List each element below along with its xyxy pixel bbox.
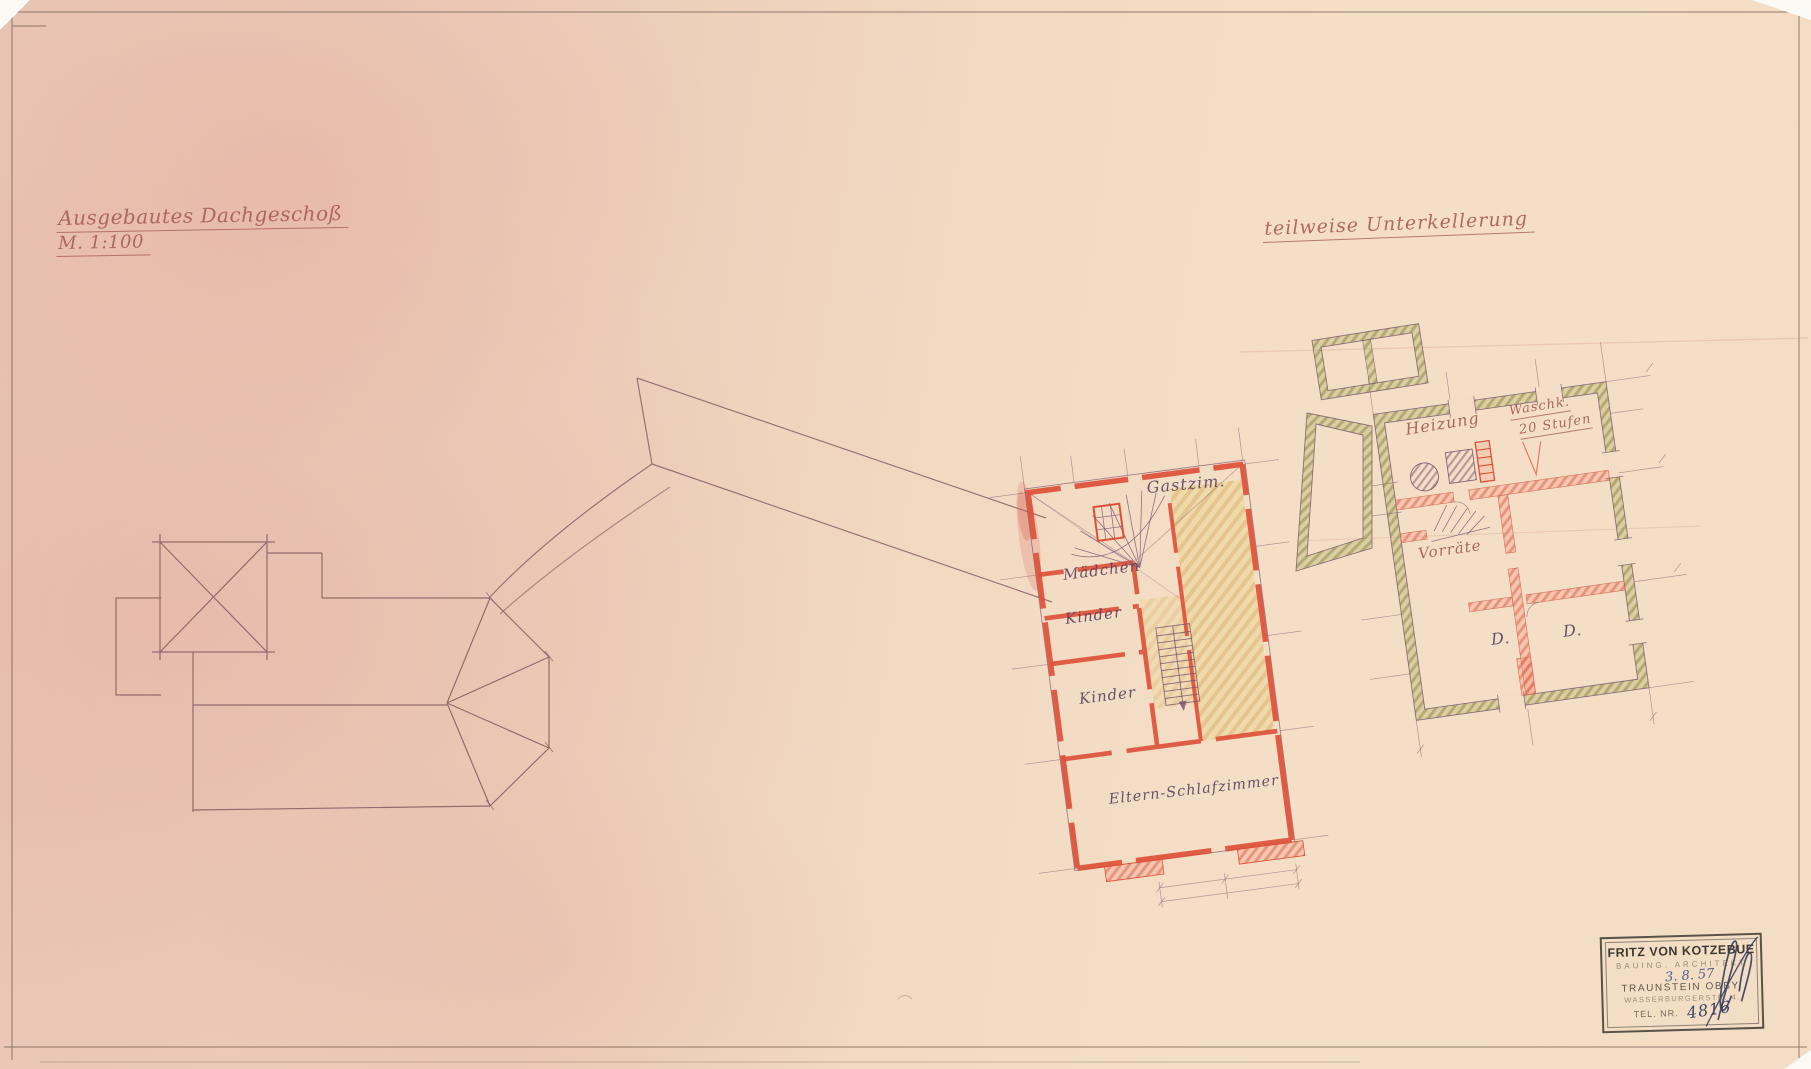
plan-linework [0, 0, 1811, 1069]
boiler-circle [1409, 461, 1441, 493]
stamp-phone-label: TEL. NR. [1634, 1008, 1679, 1019]
signature-flourish [1694, 931, 1769, 1031]
red-arrow [1523, 439, 1546, 475]
drawing-sheet: Ausgebautes Dachgeschoß M. 1:100 teilwei… [0, 0, 1811, 1069]
attic-plan-title: Ausgebautes Dachgeschoß [56, 201, 349, 233]
scan-edge [0, 0, 1811, 1069]
hatched-box [1445, 449, 1476, 483]
attic-floor-plan-drawing [985, 423, 1335, 923]
connecting-wing-lines [489, 378, 1052, 614]
attic-plan-scale: M. 1:100 [56, 231, 150, 257]
basement-floor-plan-drawing [1328, 335, 1707, 767]
architect-stamp: FRITZ VON KOTZEBUE BAUING. ARCHITEKT 3. … [1600, 933, 1765, 1033]
sheet-border [4, 4, 1807, 1062]
basement-annex-rooms [1312, 324, 1428, 400]
room-label-d-2: D. [1562, 620, 1583, 641]
paper-creases [898, 338, 1808, 999]
basement-red-walls [1395, 470, 1637, 709]
chimney-block [1093, 504, 1123, 541]
basement-red-stair [1475, 441, 1494, 483]
room-label-d-1: D. [1490, 628, 1511, 649]
roof-plan-drawing [116, 534, 553, 812]
